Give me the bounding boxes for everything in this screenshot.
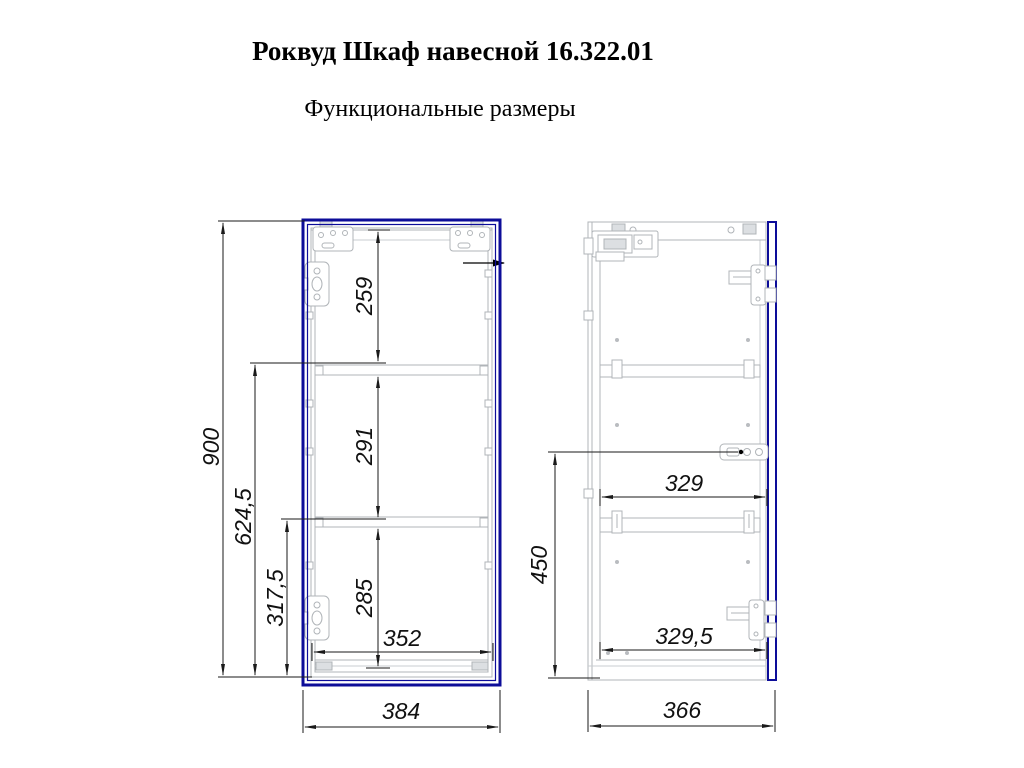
dim-lower-shelf-to-bottom: 317,5 <box>262 569 288 627</box>
dim-middle-compartment: 291 <box>351 427 377 466</box>
side-clip-upper <box>584 311 593 320</box>
side-dimensions: 450 329 329,5 366 <box>526 450 775 732</box>
side-clip-lower <box>584 489 593 498</box>
side-view: 450 329 329,5 366 <box>526 222 776 732</box>
hanger-bracket-left <box>313 227 353 251</box>
cabinet-drawing: 900 624,5 317,5 259 291 285 352 384 <box>0 0 1024 768</box>
front-view: 900 624,5 317,5 259 291 285 352 384 <box>198 220 504 733</box>
hinge-top-left <box>302 262 329 306</box>
suspension-bracket <box>584 231 658 261</box>
dim-top-compartment: 259 <box>351 277 377 317</box>
side-hardware <box>584 231 776 640</box>
dim-lower-inner-depth: 329,5 <box>655 623 713 649</box>
dim-overall-depth: 366 <box>663 697 702 723</box>
dim-overall-height: 900 <box>198 428 224 467</box>
dim-lower-section-height: 450 <box>526 546 552 585</box>
dim-overall-width: 384 <box>382 698 420 724</box>
front-door-outline <box>303 220 500 685</box>
front-dimensions: 900 624,5 317,5 259 291 285 352 384 <box>198 221 500 733</box>
front-carcass <box>311 228 492 677</box>
bottom-fitting-left <box>316 662 332 670</box>
dim-bottom-compartment: 285 <box>351 579 377 619</box>
hinge-bottom-left <box>302 596 329 640</box>
drawing-page: Роквуд Шкаф навесной 16.322.01 Функциона… <box>0 0 1024 768</box>
hanger-bracket-right <box>450 227 490 251</box>
leader-dot <box>739 450 743 454</box>
dim-inner-width: 352 <box>383 625 422 651</box>
dim-upper-inner-depth: 329 <box>665 470 704 496</box>
shelf-clips-front <box>315 366 488 527</box>
front-hardware <box>302 221 504 670</box>
side-clips-front <box>306 270 492 569</box>
dim-upper-shelf-to-bottom: 624,5 <box>230 488 256 546</box>
bottom-fitting-right <box>472 662 488 670</box>
